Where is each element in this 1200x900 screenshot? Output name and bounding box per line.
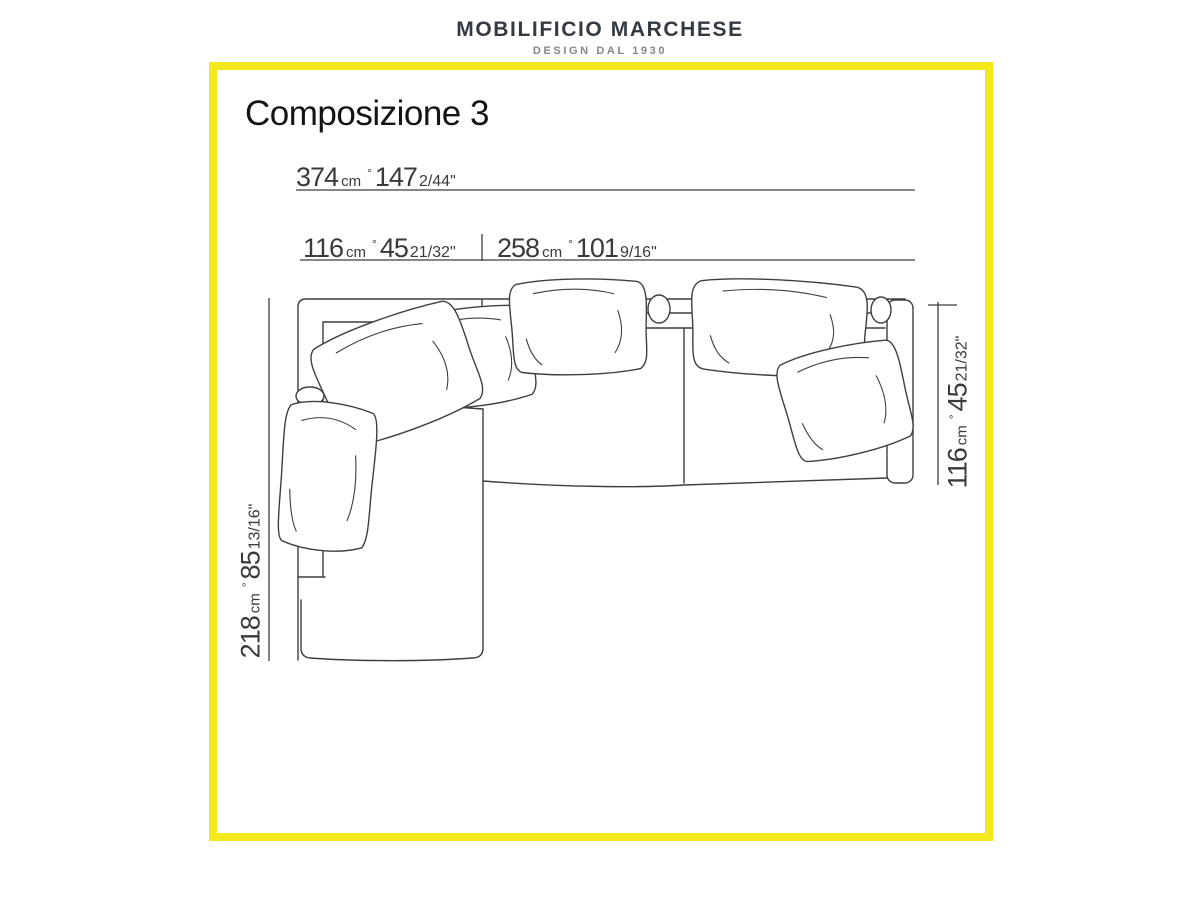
dimension-label-chaise-depth: 218cm°8513/16" — [236, 504, 267, 659]
chaise-pillow — [274, 399, 379, 555]
dimension-label-right-width: 258cm°1019/16" — [497, 233, 657, 264]
sofa-technical-drawing — [0, 0, 1200, 900]
right-bolster — [871, 297, 891, 323]
dimension-label-sofa-depth: 116cm°4521/32" — [943, 336, 974, 489]
back-pillow-center — [509, 276, 649, 377]
dimension-label-left-width: 116cm°4521/32" — [303, 233, 456, 264]
dimension-label-total-width: 374cm°1472/44" — [296, 162, 456, 193]
center-bolster — [648, 295, 670, 323]
pillows — [274, 276, 918, 554]
catalog-page: MOBILIFICIO MARCHESE DESIGN DAL 1930 Com… — [0, 0, 1200, 900]
